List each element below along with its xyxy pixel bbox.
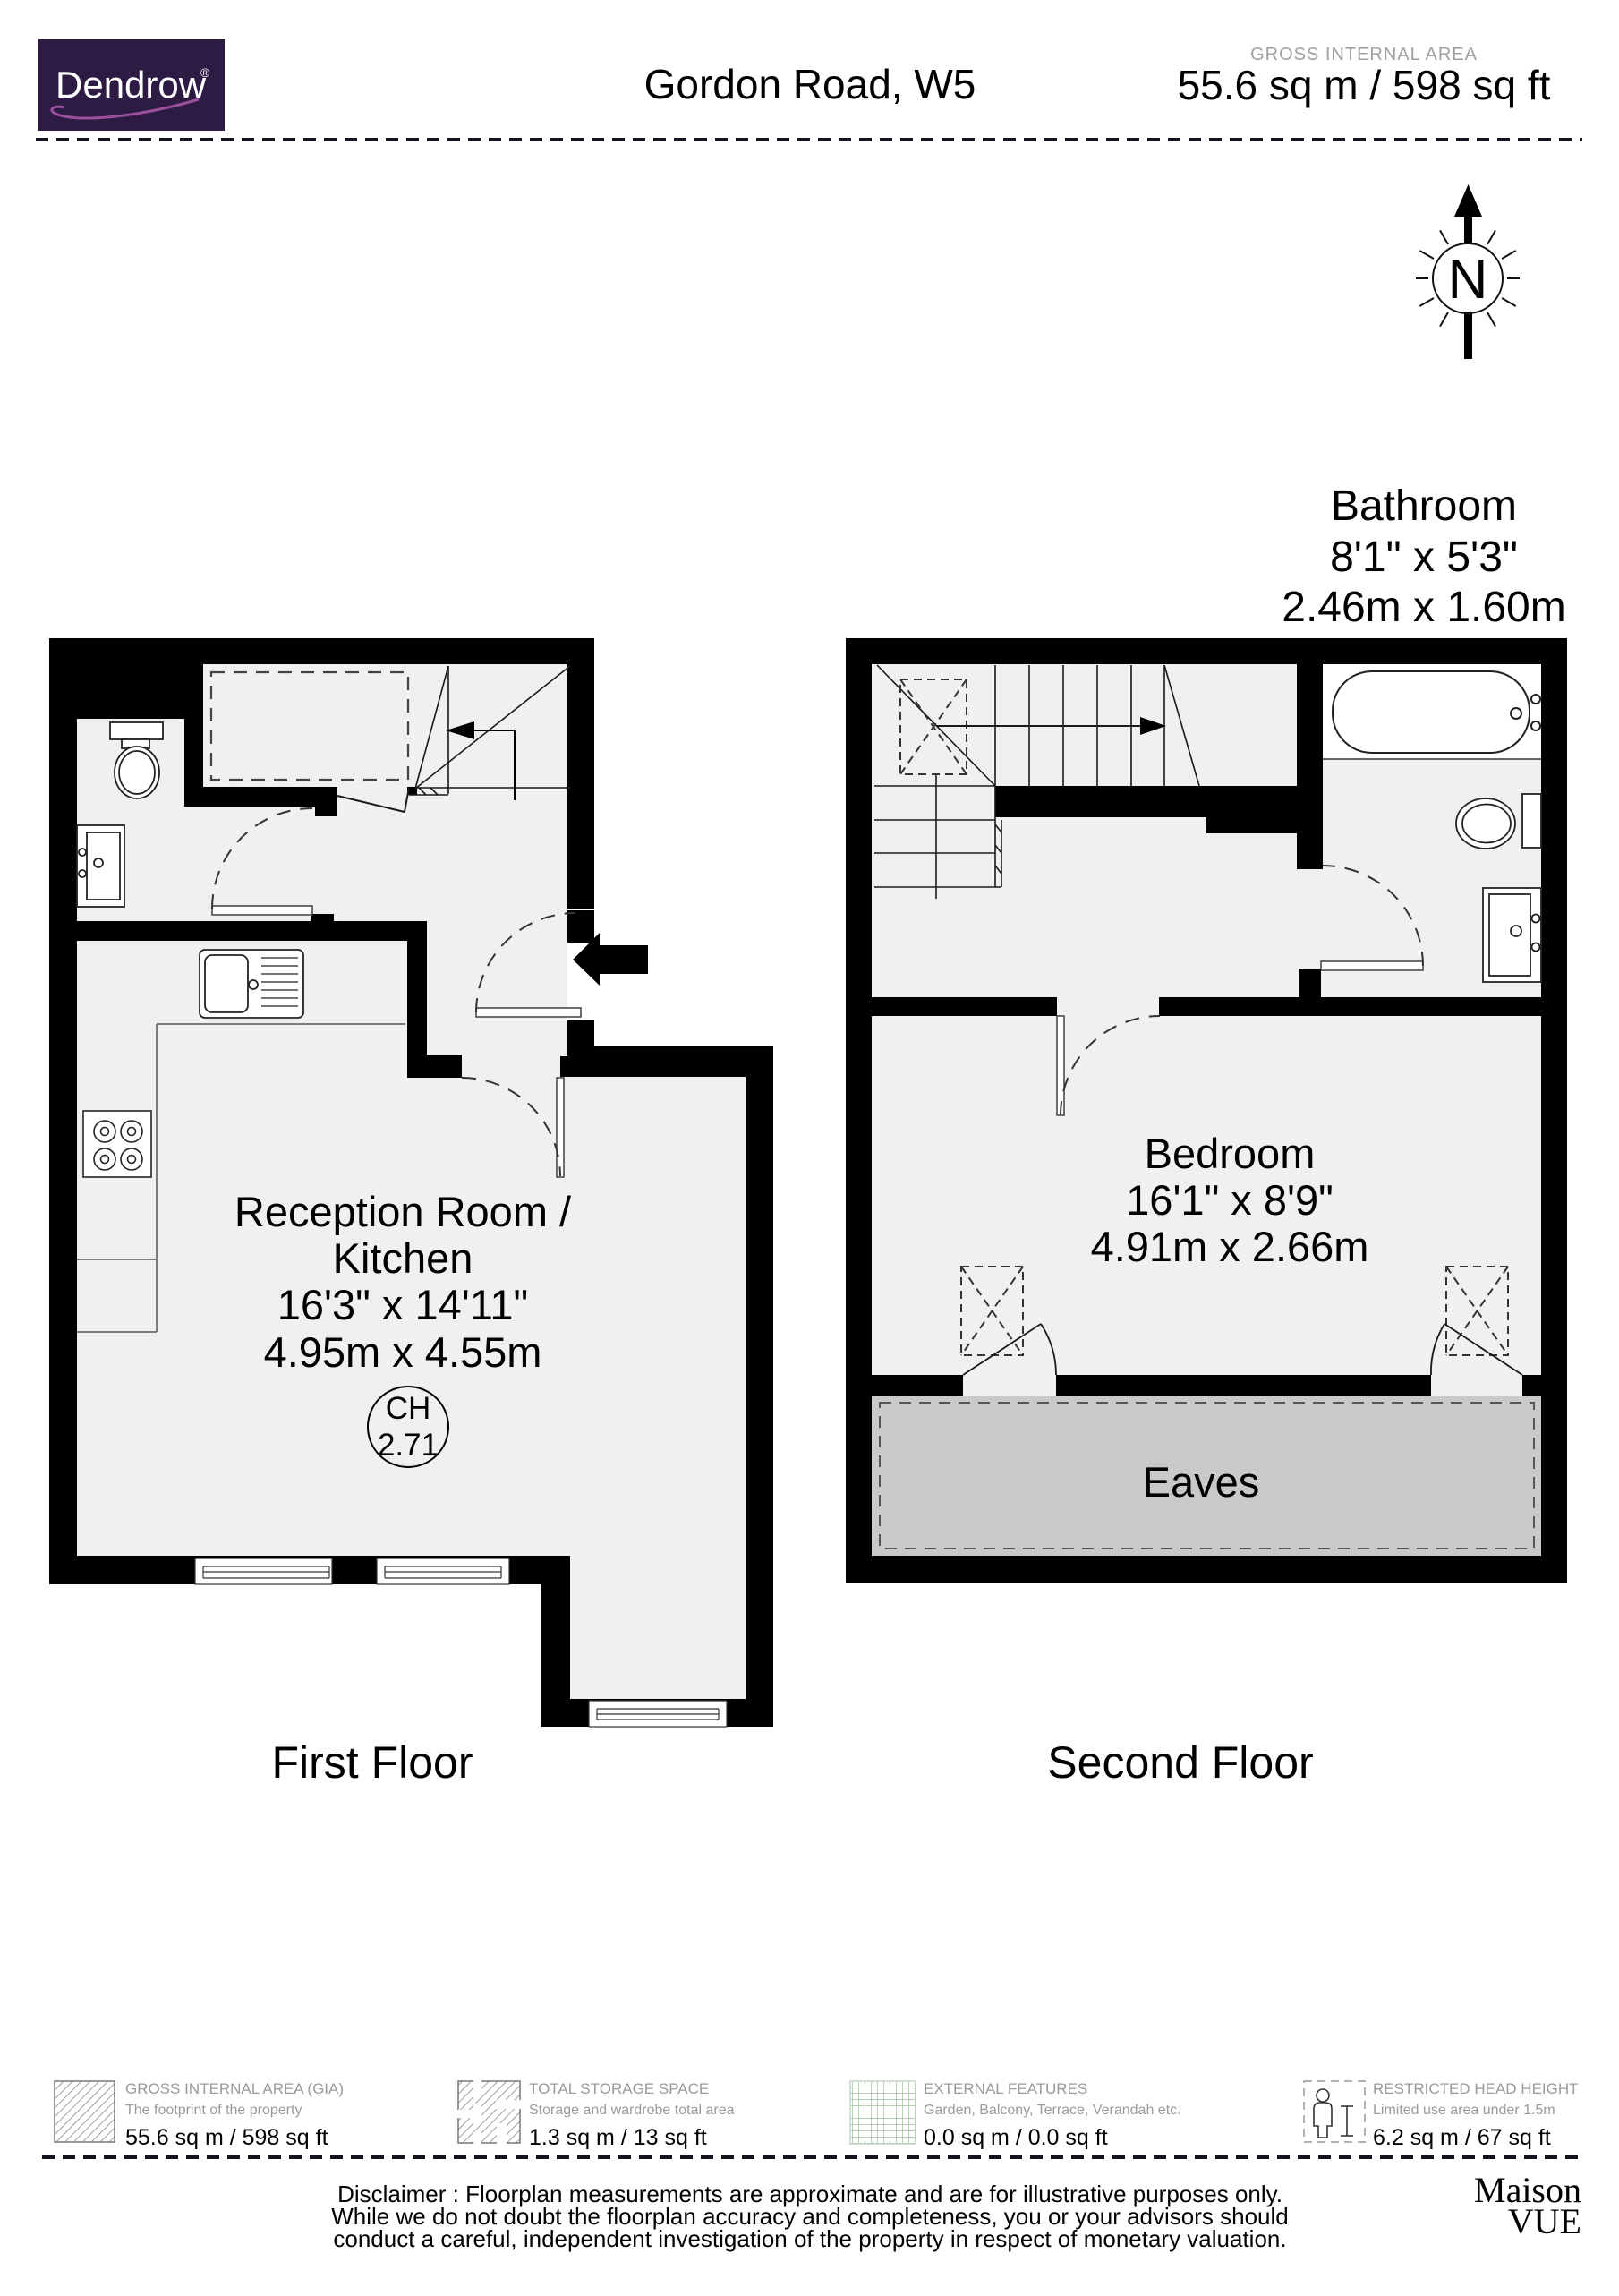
svg-text:conduct a careful, independent: conduct a careful, independent investiga… xyxy=(333,2225,1286,2252)
svg-text:Limited use area under 1.5m: Limited use area under 1.5m xyxy=(1373,2103,1555,2118)
svg-text:6.2 sq m / 67 sq ft: 6.2 sq m / 67 sq ft xyxy=(1373,2125,1551,2150)
svg-text:4.91m x 2.66m: 4.91m x 2.66m xyxy=(1091,1223,1369,1270)
svg-text:®: ® xyxy=(200,65,210,80)
svg-text:16'3" x 14'11": 16'3" x 14'11" xyxy=(277,1281,528,1328)
svg-text:TOTAL STORAGE SPACE: TOTAL STORAGE SPACE xyxy=(529,2080,709,2097)
svg-text:Garden, Balcony, Terrace, Vera: Garden, Balcony, Terrace, Verandah etc. xyxy=(924,2103,1181,2118)
svg-text:1.3 sq m / 13 sq ft: 1.3 sq m / 13 sq ft xyxy=(529,2125,707,2150)
svg-text:55.6 sq m / 598 sq ft: 55.6 sq m / 598 sq ft xyxy=(1178,62,1551,108)
svg-text:Storage and wardrobe total are: Storage and wardrobe total area xyxy=(529,2103,735,2118)
svg-text:Second Floor: Second Floor xyxy=(1047,1737,1313,1788)
svg-text:Dendrow: Dendrow xyxy=(55,64,207,106)
svg-text:Kitchen: Kitchen xyxy=(333,1234,473,1282)
svg-text:CH: CH xyxy=(386,1391,431,1426)
svg-text:First Floor: First Floor xyxy=(272,1737,473,1788)
svg-text:The footprint of the property: The footprint of the property xyxy=(125,2103,302,2118)
svg-text:RESTRICTED HEAD HEIGHT: RESTRICTED HEAD HEIGHT xyxy=(1373,2080,1579,2097)
svg-text:4.95m x 4.55m: 4.95m x 4.55m xyxy=(264,1328,542,1376)
svg-text:16'1" x 8'9": 16'1" x 8'9" xyxy=(1126,1176,1334,1224)
svg-text:N: N xyxy=(1448,249,1488,311)
svg-text:Bathroom: Bathroom xyxy=(1331,482,1517,530)
svg-text:Bedroom: Bedroom xyxy=(1145,1130,1316,1177)
svg-text:VUE: VUE xyxy=(1508,2201,1581,2241)
svg-text:55.6 sq m / 598 sq ft: 55.6 sq m / 598 sq ft xyxy=(125,2125,328,2150)
svg-text:2.71: 2.71 xyxy=(378,1428,439,1463)
svg-text:GROSS INTERNAL AREA (GIA): GROSS INTERNAL AREA (GIA) xyxy=(125,2080,344,2097)
svg-text:2.46m x 1.60m: 2.46m x 1.60m xyxy=(1282,584,1565,631)
svg-text:8'1" x 5'3": 8'1" x 5'3" xyxy=(1330,533,1518,581)
svg-text:EXTERNAL FEATURES: EXTERNAL FEATURES xyxy=(924,2080,1087,2097)
svg-text:Reception Room /: Reception Room / xyxy=(234,1188,572,1235)
svg-text:0.0 sq m / 0.0 sq ft: 0.0 sq m / 0.0 sq ft xyxy=(924,2125,1108,2150)
svg-text:Eaves: Eaves xyxy=(1143,1458,1260,1506)
svg-text:Gordon Road, W5: Gordon Road, W5 xyxy=(644,61,976,107)
